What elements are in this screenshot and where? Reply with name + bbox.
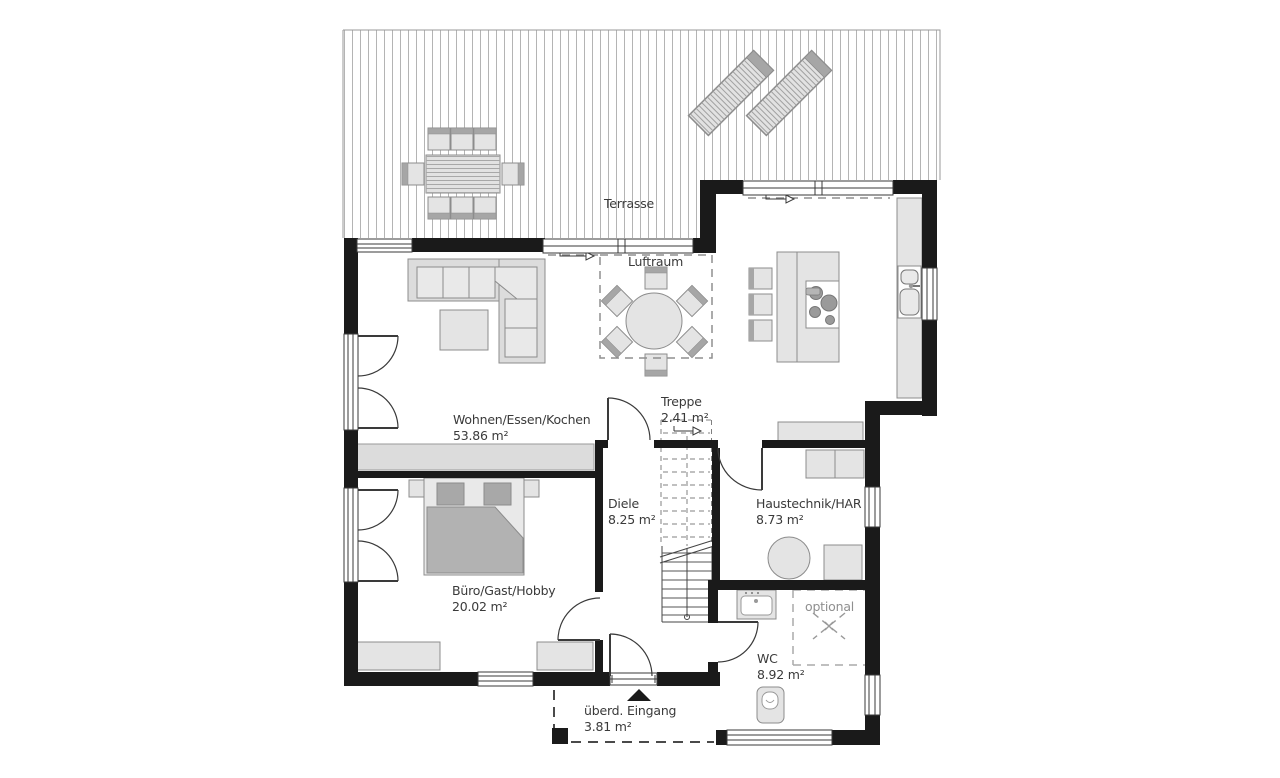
room-name: WC [757,651,805,667]
room-area: 20.02 m² [452,599,556,615]
room-name: Treppe [661,394,709,410]
kitchen-counter-sink [897,198,922,398]
room-label-buero: Büro/Gast/Hobby 20.02 m² [452,583,556,615]
optional-text: optional [805,599,854,615]
room-name: Diele [608,496,656,512]
room-name: Haustechnik/HAR [756,496,861,512]
window-haustechnik-right [865,487,880,527]
window-living-sliding [543,239,693,253]
buero-sideboard-right [537,642,593,670]
door-wc [718,622,758,662]
coffee-table [440,310,488,350]
room-label-wc: WC 8.92 m² [757,651,805,683]
stair-direction-arrow [674,426,701,435]
room-area: 8.73 m² [756,512,861,528]
room-area: 2.41 m² [661,410,709,426]
dining-table-round [601,267,707,376]
frame-french-living [344,334,358,430]
room-area: 8.92 m² [757,667,805,683]
french-door-buero [358,490,398,581]
entrance-marker [627,689,651,701]
room-label-eingang: überd. Eingang 3.81 m² [584,703,676,735]
bed [409,478,539,575]
window-kitchen-sliding [743,181,893,195]
frame-french-buero [344,488,358,582]
window-wc-right [865,675,880,715]
front-door [610,634,652,676]
window-kitchen-right [922,268,937,320]
kitchen-island [777,252,839,362]
room-name: Büro/Gast/Hobby [452,583,556,599]
label-optional: optional [805,599,854,615]
floorplan-graphics [0,0,1280,778]
door-living-diele [608,398,650,440]
french-door-living [358,336,398,428]
room-label-treppe: Treppe 2.41 m² [661,394,709,426]
doors [358,336,762,676]
room-label-wohnen: Wohnen/Essen/Kochen 53.86 m² [453,412,591,444]
wc-sink [737,590,776,619]
room-area: 8.25 m² [608,512,656,528]
room-area: 3.81 m² [584,719,676,735]
door-buero [558,598,600,640]
boiler [768,537,810,579]
room-label-haustechnik: Haustechnik/HAR 8.73 m² [756,496,861,528]
living-sideboard [356,444,594,470]
door-haustechnik [718,448,762,490]
bar-stools [749,268,772,341]
buero-sideboard-left [356,642,440,670]
room-label-terrasse: Terrasse [604,196,654,212]
room-name: Wohnen/Essen/Kochen [453,412,591,428]
window-wc-bottom [727,730,832,745]
room-name: Luftraum [628,254,683,270]
toilet [757,687,784,723]
room-label-diele: Diele 8.25 m² [608,496,656,528]
window-buero-bottom [478,672,533,686]
staircase [660,420,714,622]
front-door-sill [610,673,657,685]
floorplan-canvas: Terrasse Luftraum Wohnen/Essen/Kochen 53… [0,0,1280,778]
room-name: überd. Eingang [584,703,676,719]
room-area: 53.86 m² [453,428,591,444]
room-name: Terrasse [604,196,654,212]
window-living-left [357,239,412,252]
room-label-luftraum: Luftraum [628,254,683,270]
